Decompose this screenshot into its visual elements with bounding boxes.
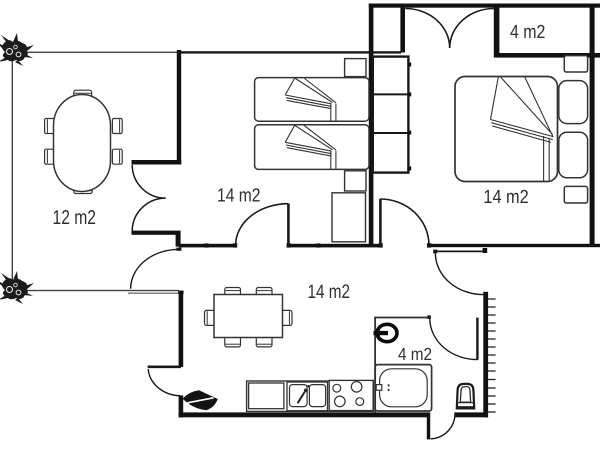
svg-text:4 m2: 4 m2 bbox=[398, 344, 432, 364]
svg-text:12 m2: 12 m2 bbox=[53, 207, 97, 229]
svg-text:14 m2: 14 m2 bbox=[483, 187, 528, 208]
svg-text:4 m2: 4 m2 bbox=[510, 22, 545, 43]
svg-text:14 m2: 14 m2 bbox=[217, 186, 261, 207]
svg-text:14 m2: 14 m2 bbox=[308, 281, 351, 303]
